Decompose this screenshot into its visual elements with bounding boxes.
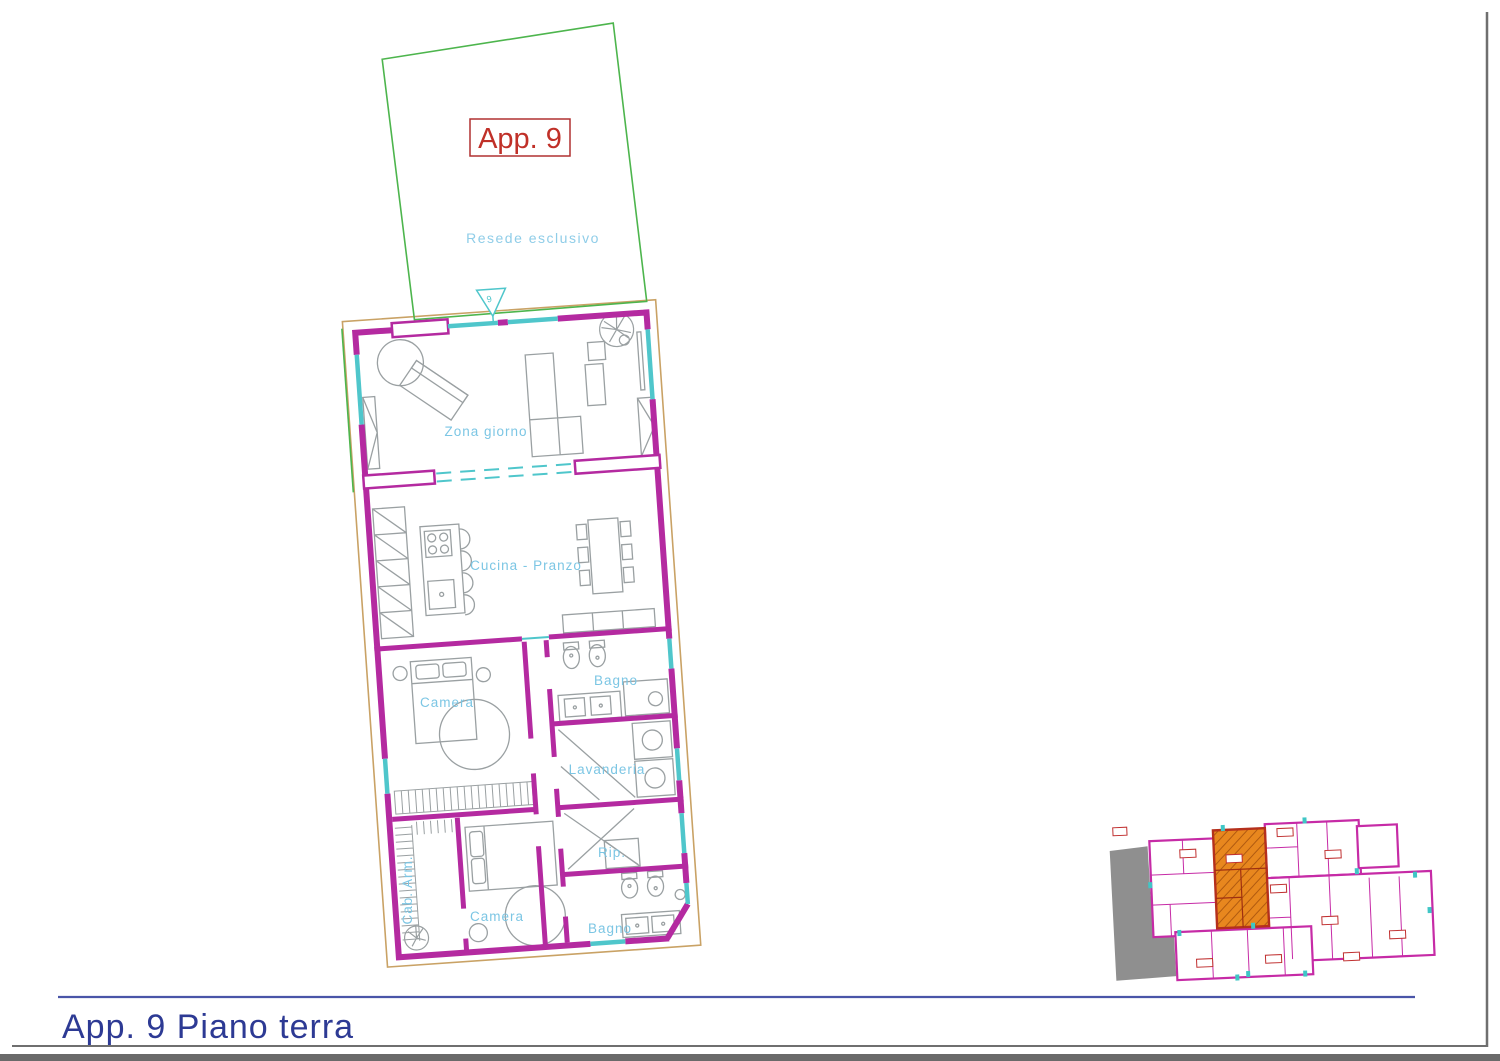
- room-label-zona-giorno: Zona giorno: [444, 424, 527, 439]
- overview-blocks: [1149, 817, 1435, 981]
- room-label-camera-2: Camera: [470, 909, 524, 924]
- room-label-bagno-1: Bagno: [594, 673, 638, 688]
- room-label-cab-arm: Cab. Arm.: [400, 855, 415, 924]
- room-label-cucina: Cucina - Pranzo: [470, 558, 582, 573]
- sheet-title: App. 9 Piano terra: [62, 1008, 354, 1046]
- apartment-label-box: App. 9: [470, 119, 570, 156]
- room-label-lavanderia: Lavanderia: [569, 762, 646, 777]
- room-label-camera-1: Camera: [420, 695, 474, 710]
- drawing-sheet: App. 9 Resede esclusivo 9 Zona giorno Cu…: [0, 0, 1500, 1061]
- room-label-rip: Rip.: [598, 845, 626, 860]
- open-passage-dashes: [436, 464, 575, 482]
- resede-label: Resede esclusivo: [466, 230, 600, 246]
- door-sill: [522, 637, 549, 639]
- overview-plan: [1109, 812, 1436, 986]
- plan-labels: App. 9 Resede esclusivo 9 Zona giorno Cu…: [400, 119, 645, 936]
- plant-icon: [404, 925, 430, 951]
- apartment-label: App. 9: [478, 123, 562, 155]
- floor-plan-canvas: App. 9 Resede esclusivo 9 Zona giorno Cu…: [0, 0, 1500, 1061]
- title-block: App. 9 Piano terra: [58, 997, 1415, 1046]
- entrance-marker: [477, 288, 508, 324]
- main-floor-plan: [322, 21, 701, 967]
- room-label-bagno-2: Bagno: [588, 921, 632, 936]
